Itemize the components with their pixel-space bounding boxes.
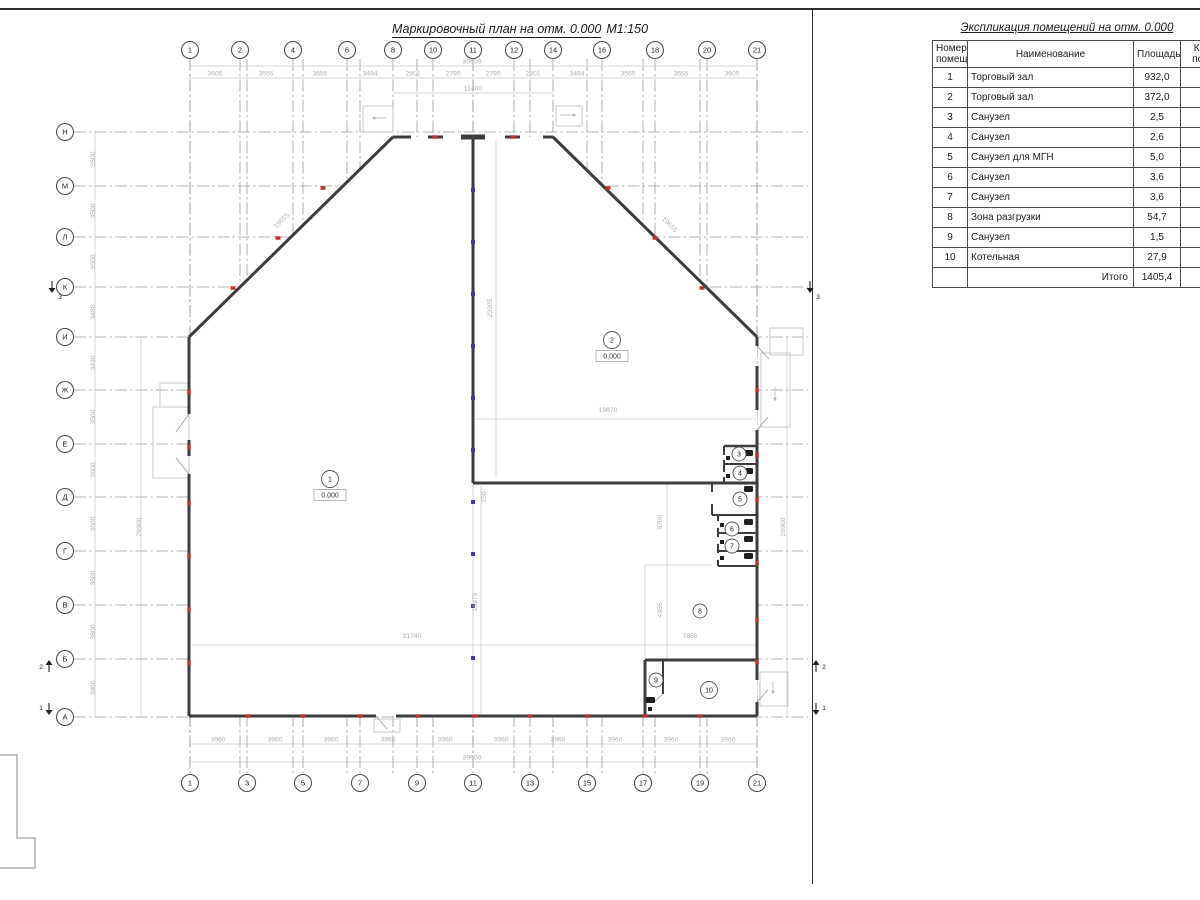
red-marker <box>231 286 236 290</box>
red-marker <box>606 186 611 190</box>
room-area-cell: 372,0 <box>1134 88 1181 108</box>
entry-arrow-head <box>771 691 775 694</box>
room-schedule: Экспликация помещений на отм. 0.000 Номе… <box>932 22 1200 288</box>
table-row: 8 Зона разгрузки 54,7 <box>933 208 1200 228</box>
door-block <box>720 523 724 527</box>
room-category-cell <box>1181 168 1200 188</box>
room-number-cell: 5 <box>933 148 968 168</box>
door-block <box>648 707 652 711</box>
room-number-cell: 10 <box>933 248 968 268</box>
header-room-area: Площадь <box>1134 41 1181 68</box>
table-row: 10 Котельная 27,9 <box>933 248 1200 268</box>
red-marker <box>187 501 191 506</box>
dimension-label: 7860 <box>682 633 697 640</box>
dimension-label: 31740 <box>403 633 422 640</box>
dimension-label: 19655 <box>660 216 678 234</box>
section-mark-number: 1 <box>822 705 826 712</box>
room-number-cell: 6 <box>933 168 968 188</box>
red-marker <box>698 714 703 718</box>
grid-axis-label: 21 <box>753 46 761 55</box>
grid-axis-label: 21 <box>753 779 761 788</box>
grid-axis-label: 20 <box>703 46 711 55</box>
grid-axis-label: 10 <box>429 46 437 55</box>
red-marker <box>511 135 516 139</box>
blue-marker <box>471 188 475 192</box>
dimension-label: 39600 <box>463 59 482 66</box>
room-name-cell: Торговый зал <box>968 68 1134 88</box>
dimension-label: 19655 <box>273 212 291 230</box>
grid-axis-label: 12 <box>510 46 518 55</box>
dimension-label: 3500 <box>90 203 97 218</box>
dimension-label: 11400 <box>464 86 483 93</box>
dimension-label: 3600 <box>90 624 97 639</box>
room-name-cell: Торговый зал <box>968 88 1134 108</box>
grid-axis-label: 9 <box>415 779 419 788</box>
blue-marker <box>471 656 475 660</box>
porch-outline <box>374 719 400 732</box>
red-marker <box>755 618 759 623</box>
grid-axis-label: 2 <box>238 46 242 55</box>
room-name-cell: Санузел для МГН <box>968 148 1134 168</box>
grid-axis-label: В <box>62 601 67 610</box>
toilet-fixture <box>646 697 655 703</box>
schedule-total: Итого 1405,4 <box>933 268 1200 288</box>
dimension-label: 3960 <box>90 680 97 695</box>
section-mark-arrow <box>46 660 53 665</box>
red-marker <box>187 608 191 613</box>
dimension-label: 3500 <box>90 409 97 424</box>
section-mark-number: 2 <box>39 664 43 671</box>
grid-axis-label: К <box>63 283 68 292</box>
table-row: 7 Санузел 3,6 <box>933 188 1200 208</box>
room-number-cell: 4 <box>933 128 968 148</box>
door-block <box>726 474 730 478</box>
red-marker <box>755 388 759 393</box>
room-area-cell: 1,5 <box>1134 228 1181 248</box>
dimension-label: 3500 <box>90 151 97 166</box>
room-area-cell: 54,7 <box>1134 208 1181 228</box>
red-marker <box>276 236 281 240</box>
dimension-label: 3555 <box>258 71 273 78</box>
room-name-cell: Зона разгрузки <box>968 208 1134 228</box>
room-number: 1 <box>328 476 332 483</box>
dimension-label: 23985 <box>487 298 494 317</box>
total-value: 1405,4 <box>1134 268 1181 288</box>
elevation-label: 0,000 <box>321 493 339 500</box>
grid-axis-label: 4 <box>291 46 295 55</box>
room-category-cell <box>1181 128 1200 148</box>
room-area-cell: 27,9 <box>1134 248 1181 268</box>
room-schedule-table: Номер помещ. Наименование Площадь Кат. п… <box>932 40 1200 288</box>
blue-marker <box>471 396 475 400</box>
toilet-fixture <box>744 486 753 492</box>
dimension-label: 3960 <box>663 737 678 744</box>
grid-axis-label: 13 <box>526 779 534 788</box>
section-mark-arrow <box>813 710 820 715</box>
header-room-name: Наименование <box>968 41 1134 68</box>
dimension-label: 2801 <box>525 71 540 78</box>
grid-axis-label: 16 <box>598 46 606 55</box>
toilet-fixture <box>744 519 753 525</box>
dimension-label: 3960 <box>607 737 622 744</box>
dimension-label: 4955 <box>657 602 664 617</box>
table-row: 4 Санузел 2,6 <box>933 128 1200 148</box>
red-marker <box>653 236 658 240</box>
dimension-label: 3500 <box>90 254 97 269</box>
porch-outline <box>556 106 582 126</box>
room-area-cell: 2,5 <box>1134 108 1181 128</box>
door-block <box>720 556 724 560</box>
dimension-label: 3605 <box>724 71 739 78</box>
grid-axis-label: Н <box>62 128 67 137</box>
grid-axis-label: 3 <box>245 779 249 788</box>
dimension-label: 3494 <box>569 71 584 78</box>
door-block <box>726 456 730 460</box>
section-mark-number: 2 <box>822 664 826 671</box>
room-number: 9 <box>654 677 658 684</box>
grid-axis-label: М <box>62 182 68 191</box>
dimension-label: 26900 <box>780 517 787 536</box>
room-name-cell: Котельная <box>968 248 1134 268</box>
grid-axis-label: 1 <box>188 46 192 55</box>
room-number: 2 <box>610 337 614 344</box>
dimension-label: 26900 <box>136 517 143 536</box>
section-mark-arrow <box>807 288 814 293</box>
red-marker <box>187 554 191 559</box>
red-marker <box>187 445 191 450</box>
room-number-cell: 3 <box>933 108 968 128</box>
blue-marker <box>471 552 475 556</box>
dimension-label: 3960 <box>493 737 508 744</box>
entry-arrow-head <box>372 116 375 120</box>
red-marker <box>528 714 533 718</box>
door-leaf <box>757 417 768 430</box>
room-category-cell <box>1181 228 1200 248</box>
room-category-cell <box>1181 68 1200 88</box>
table-row: 2 Торговый зал 372,0 <box>933 88 1200 108</box>
grid-axis-label: Ж <box>62 386 69 395</box>
total-row: Итого 1405,4 <box>933 268 1200 288</box>
entry-arrow-head <box>573 113 576 117</box>
table-row: 1 Торговый зал 932,0 <box>933 68 1200 88</box>
grid-axis-label: А <box>62 713 67 722</box>
grid-axis-label: 7 <box>358 779 362 788</box>
door-leaf <box>176 414 189 432</box>
header-room-category: Кат. пом. <box>1181 41 1200 68</box>
blue-marker <box>471 240 475 244</box>
grid-axis-label: Д <box>62 493 67 502</box>
porch-outline <box>363 106 393 132</box>
dimension-label: 3600 <box>90 516 97 531</box>
floor-plan: 12468101112141618202113579111315171921НМ… <box>0 0 830 900</box>
room-number-cell: 8 <box>933 208 968 228</box>
red-marker <box>246 714 251 718</box>
dimension-label: 3605 <box>207 71 222 78</box>
title-block-corner <box>0 755 35 868</box>
grid-axis-label: 8 <box>391 46 395 55</box>
red-marker <box>643 714 648 718</box>
dimension-label: 16975 <box>472 592 479 611</box>
entry-arrow-head <box>773 398 777 401</box>
dimension-label: 3960 <box>267 737 282 744</box>
door-block <box>720 540 724 544</box>
table-row: 6 Санузел 3,6 <box>933 168 1200 188</box>
schedule-header: Номер помещ. Наименование Площадь Кат. п… <box>933 41 1200 68</box>
dimension-label: 5700 <box>657 514 664 529</box>
porch-outline <box>770 328 803 355</box>
dimension-label: 3555 <box>312 71 327 78</box>
grid-axis-label: 15 <box>583 779 591 788</box>
room-number: 7 <box>730 543 734 550</box>
room-category-cell <box>1181 148 1200 168</box>
red-marker <box>187 390 191 395</box>
red-marker <box>755 561 759 566</box>
dimension-label: 2801 <box>405 71 420 78</box>
section-mark-number: 1 <box>39 705 43 712</box>
red-marker <box>755 453 759 458</box>
door-leaf <box>757 346 769 359</box>
room-category-cell <box>1181 88 1200 108</box>
blue-marker <box>471 500 475 504</box>
dimension-label: 3600 <box>90 462 97 477</box>
section-mark-number: 3 <box>816 294 820 301</box>
dimension-label: 3490 <box>90 355 97 370</box>
grid-axis-label: 1 <box>188 779 192 788</box>
room-name-cell: Санузел <box>968 228 1134 248</box>
schedule-body: 1 Торговый зал 932,0 2 Торговый зал 372,… <box>933 68 1200 268</box>
dimension-label: 3555 <box>673 71 688 78</box>
dimension-label: 3494 <box>362 71 377 78</box>
table-row: 9 Санузел 1,5 <box>933 228 1200 248</box>
table-row: 3 Санузел 2,5 <box>933 108 1200 128</box>
room-category-cell <box>1181 208 1200 228</box>
toilet-fixture <box>744 536 753 542</box>
blue-marker <box>471 344 475 348</box>
red-marker <box>358 714 363 718</box>
room-number-cell: 7 <box>933 188 968 208</box>
room-number: 8 <box>698 608 702 615</box>
section-mark-arrow <box>46 710 53 715</box>
room-number: 5 <box>738 496 742 503</box>
grid-axis-label: 11 <box>469 779 477 788</box>
dimension-label: 3960 <box>550 737 565 744</box>
room-name-cell: Санузел <box>968 168 1134 188</box>
room-number: 3 <box>737 451 741 458</box>
header-room-number: Номер помещ. <box>933 41 968 68</box>
room-number: 10 <box>705 687 713 694</box>
room-number-cell: 2 <box>933 88 968 108</box>
dimension-label: 3960 <box>210 737 225 744</box>
red-marker <box>473 714 478 718</box>
dimension-label: 3555 <box>620 71 635 78</box>
door-leaf <box>757 690 768 702</box>
grid-axis-label: 5 <box>301 779 305 788</box>
room-area-cell: 3,6 <box>1134 168 1181 188</box>
dimension-label: 3960 <box>720 737 735 744</box>
total-label: Итого <box>968 268 1134 288</box>
room-number-cell: 1 <box>933 68 968 88</box>
dimension-label: 19870 <box>599 407 618 414</box>
total-category-cell <box>1181 268 1200 288</box>
room-name-cell: Санузел <box>968 188 1134 208</box>
red-marker <box>321 186 326 190</box>
room-area-cell: 932,0 <box>1134 68 1181 88</box>
room-schedule-title: Экспликация помещений на отм. 0.000 <box>932 22 1200 34</box>
door-leaf <box>176 458 189 474</box>
dimension-label: 3960 <box>437 737 452 744</box>
room-category-cell <box>1181 248 1200 268</box>
blue-marker <box>471 448 475 452</box>
elevation-label: 0,000 <box>603 354 621 361</box>
grid-axis-label: Б <box>63 655 68 664</box>
grid-axis-label: 18 <box>651 46 659 55</box>
blue-marker <box>471 292 475 296</box>
dimension-label: 2790 <box>445 71 460 78</box>
dimension-label: 3600 <box>90 570 97 585</box>
porch-outline <box>160 383 188 407</box>
red-marker <box>187 661 191 666</box>
room-number: 6 <box>730 526 734 533</box>
grid-axis-label: 17 <box>639 779 647 788</box>
room-area-cell: 5,0 <box>1134 148 1181 168</box>
section-mark-arrow <box>49 288 56 293</box>
grid-axis-label: Л <box>63 233 68 242</box>
grid-axis-label: 19 <box>696 779 704 788</box>
total-empty-cell <box>933 268 968 288</box>
red-marker <box>700 286 705 290</box>
porch-outline <box>760 672 788 706</box>
red-marker <box>416 714 421 718</box>
red-marker <box>433 135 438 139</box>
grid-axis-label: И <box>62 333 67 342</box>
room-category-cell <box>1181 108 1200 128</box>
section-mark-number: 3 <box>58 294 62 301</box>
table-row: 5 Санузел для МГН 5,0 <box>933 148 1200 168</box>
red-marker <box>301 714 306 718</box>
dimension-label: 150 <box>481 491 488 503</box>
grid-axis-label: Г <box>63 547 67 556</box>
room-number-cell: 9 <box>933 228 968 248</box>
room-number: 4 <box>738 470 742 477</box>
toilet-fixture <box>744 553 753 559</box>
red-marker <box>755 498 759 503</box>
dimension-label: 3480 <box>90 304 97 319</box>
room-name-cell: Санузел <box>968 108 1134 128</box>
red-marker <box>586 714 591 718</box>
grid-axis-label: 11 <box>469 46 477 55</box>
grid-axis-label: 14 <box>549 46 557 55</box>
dimension-label: 39600 <box>463 755 482 762</box>
red-marker <box>755 660 759 665</box>
room-area-cell: 2,6 <box>1134 128 1181 148</box>
grid-axis-label: Е <box>62 440 67 449</box>
room-category-cell <box>1181 188 1200 208</box>
dimension-label: 2790 <box>485 71 500 78</box>
section-mark-arrow <box>813 660 820 665</box>
dimension-label: 3960 <box>323 737 338 744</box>
dimension-label: 3960 <box>380 737 395 744</box>
room-area-cell: 3,6 <box>1134 188 1181 208</box>
room-name-cell: Санузел <box>968 128 1134 148</box>
door-leaf <box>376 716 387 729</box>
grid-axis-label: 6 <box>345 46 349 55</box>
